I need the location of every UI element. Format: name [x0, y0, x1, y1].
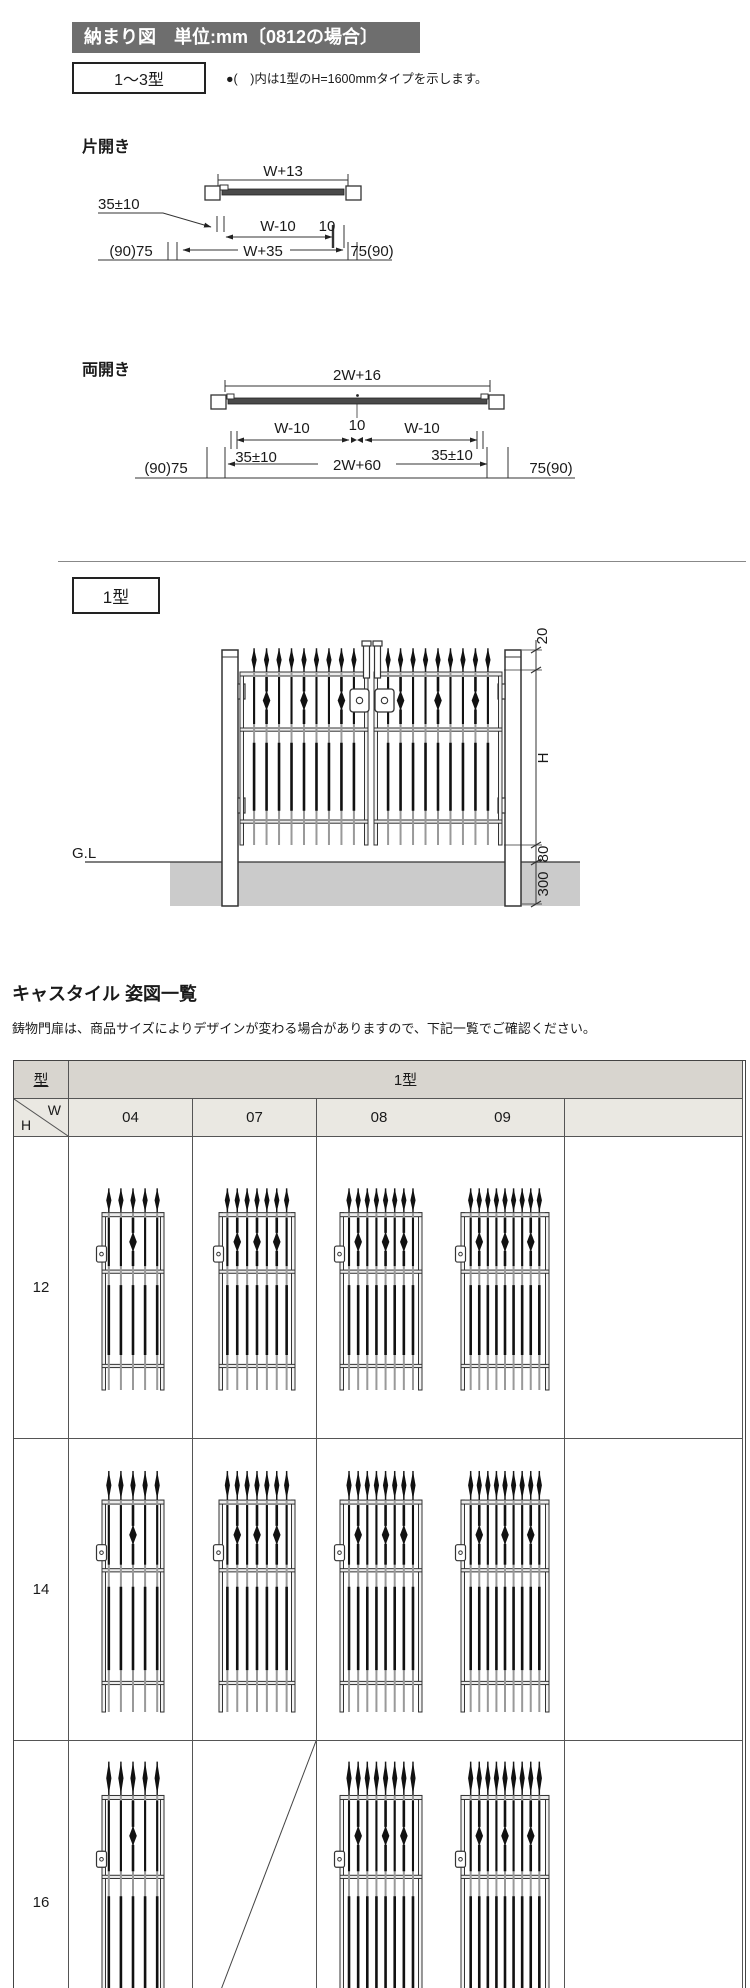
- catalog-title: キャスタイル 姿図一覧: [12, 980, 197, 1006]
- row-height-label-12: 12: [14, 1137, 69, 1439]
- gate-cell-h12-w04: [69, 1137, 193, 1439]
- not-available-diagonal: [193, 1741, 316, 1988]
- width-header-blank: [565, 1099, 743, 1137]
- gate-thumbnail: [93, 1755, 169, 1988]
- gate-thumbnail: [331, 1183, 427, 1392]
- size-table: 型 1型 W H 04070809121416: [13, 1060, 746, 1988]
- dim-top-clearance: 20: [534, 628, 551, 645]
- gate-cell-h16-blank: [565, 1741, 743, 1988]
- type-range-box: 1〜3型: [72, 62, 206, 94]
- right-post: [346, 186, 361, 200]
- gate-cell-h16-w07: [193, 1741, 317, 1988]
- dim-overall-width: W+35: [243, 243, 283, 260]
- row-height-label-14: 14: [14, 1439, 69, 1741]
- h-axis-label: H: [21, 1117, 31, 1133]
- dim-right-post: 75(90): [529, 460, 572, 477]
- gate-thumbnail: [93, 1465, 169, 1714]
- left-post: [222, 650, 238, 906]
- dim-embed-depth: 300: [535, 871, 552, 896]
- dim-left-offset: 35±10: [235, 449, 277, 466]
- dim-center-gap: 10: [349, 417, 366, 434]
- single-swing-diagram: W+13 35±10 W-10 10 (90)75 W+35 75(90): [90, 145, 400, 270]
- center-meeting-stiles: [362, 641, 382, 678]
- dim-left-leaf: W-10: [274, 420, 310, 437]
- gate-thumbnail: [331, 1755, 427, 1988]
- gate-thumbnail: [210, 1465, 300, 1714]
- gate-cell-h16-w04: [69, 1741, 193, 1988]
- catalog-note: 鋳物門扉は、商品サイズによりデザインが変わる場合がありますので、下記一覧でご確認…: [12, 1018, 596, 1037]
- gate-cell-h14-w07: [193, 1439, 317, 1741]
- width-header-07: 07: [193, 1099, 317, 1137]
- double-swing-diagram: 2W+16 W-10 10 W-10 35±10 2W+60 35±10 (90…: [95, 350, 595, 490]
- gate-cell-h14-w09: [441, 1439, 565, 1741]
- gate-cell-h12-w07: [193, 1137, 317, 1439]
- gate-cell-h12-w09: [441, 1137, 565, 1439]
- type-range-note: ●( )内は1型のH=1600mmタイプを示します。: [226, 68, 488, 87]
- gate-thumbnail: [210, 1183, 300, 1392]
- left-post: [205, 186, 220, 200]
- width-header-09: 09: [441, 1099, 565, 1137]
- dim-top-width: 2W+16: [333, 367, 381, 384]
- type-range-label: 1〜3型: [114, 66, 164, 90]
- dim-top-width: W+13: [263, 163, 303, 180]
- gate-thumbnail: [452, 1183, 554, 1392]
- dim-left-post: (90)75: [109, 243, 152, 260]
- dim-overall-width: 2W+60: [333, 457, 381, 474]
- gate-thumbnail: [331, 1465, 427, 1714]
- dim-leaf-width: W-10: [260, 218, 296, 235]
- w-axis-label: W: [48, 1102, 61, 1118]
- gate-cell-h12-blank: [565, 1137, 743, 1439]
- gate-leaves-bar: [228, 398, 487, 404]
- dim-hinge-offset: 35±10: [98, 196, 140, 213]
- gate-thumbnail: [452, 1465, 554, 1714]
- right-post: [489, 395, 504, 409]
- dim-right-offset: 35±10: [431, 447, 473, 464]
- width-header-08: 08: [317, 1099, 441, 1137]
- left-post: [211, 395, 226, 409]
- width-header-04: 04: [69, 1099, 193, 1137]
- gate-thumbnail: [93, 1183, 169, 1392]
- table-series-header: 1型: [69, 1061, 743, 1099]
- dim-left-post: (90)75: [144, 460, 187, 477]
- dim-right-post: 75(90): [350, 243, 393, 260]
- table-wh-corner-cell: W H: [14, 1099, 69, 1137]
- gate-cell-h14-w04: [69, 1439, 193, 1741]
- gate-leaf-bar: [222, 189, 344, 195]
- section-title: 納まり図 単位:mm〔0812の場合〕: [84, 27, 378, 47]
- gate-thumbnail: [452, 1755, 554, 1988]
- gate-cell-h14-blank: [565, 1439, 743, 1741]
- gate-leaves: [240, 648, 502, 845]
- gate-cell-h16-w09: [441, 1741, 565, 1988]
- gate-cell-h12-w08: [317, 1137, 441, 1439]
- section-title-bar: 納まり図 単位:mm〔0812の場合〕: [72, 22, 420, 53]
- ground-level-label: G.L: [72, 845, 96, 862]
- table-corner-type-header: 型: [14, 1061, 69, 1099]
- dim-gate-height: H: [535, 753, 552, 764]
- section-divider: [58, 561, 746, 562]
- row-height-label-16: 16: [14, 1741, 69, 1988]
- gate-cell-h14-w08: [317, 1439, 441, 1741]
- gate-cell-h16-w08: [317, 1741, 441, 1988]
- right-post: [505, 650, 521, 906]
- dim-gap: 10: [319, 218, 336, 235]
- type1-elevation-drawing: G.L 20 H 80 300: [60, 600, 620, 920]
- dim-bottom-clearance: 80: [535, 846, 552, 863]
- dim-right-leaf: W-10: [404, 420, 440, 437]
- latch-assembly: [350, 689, 394, 712]
